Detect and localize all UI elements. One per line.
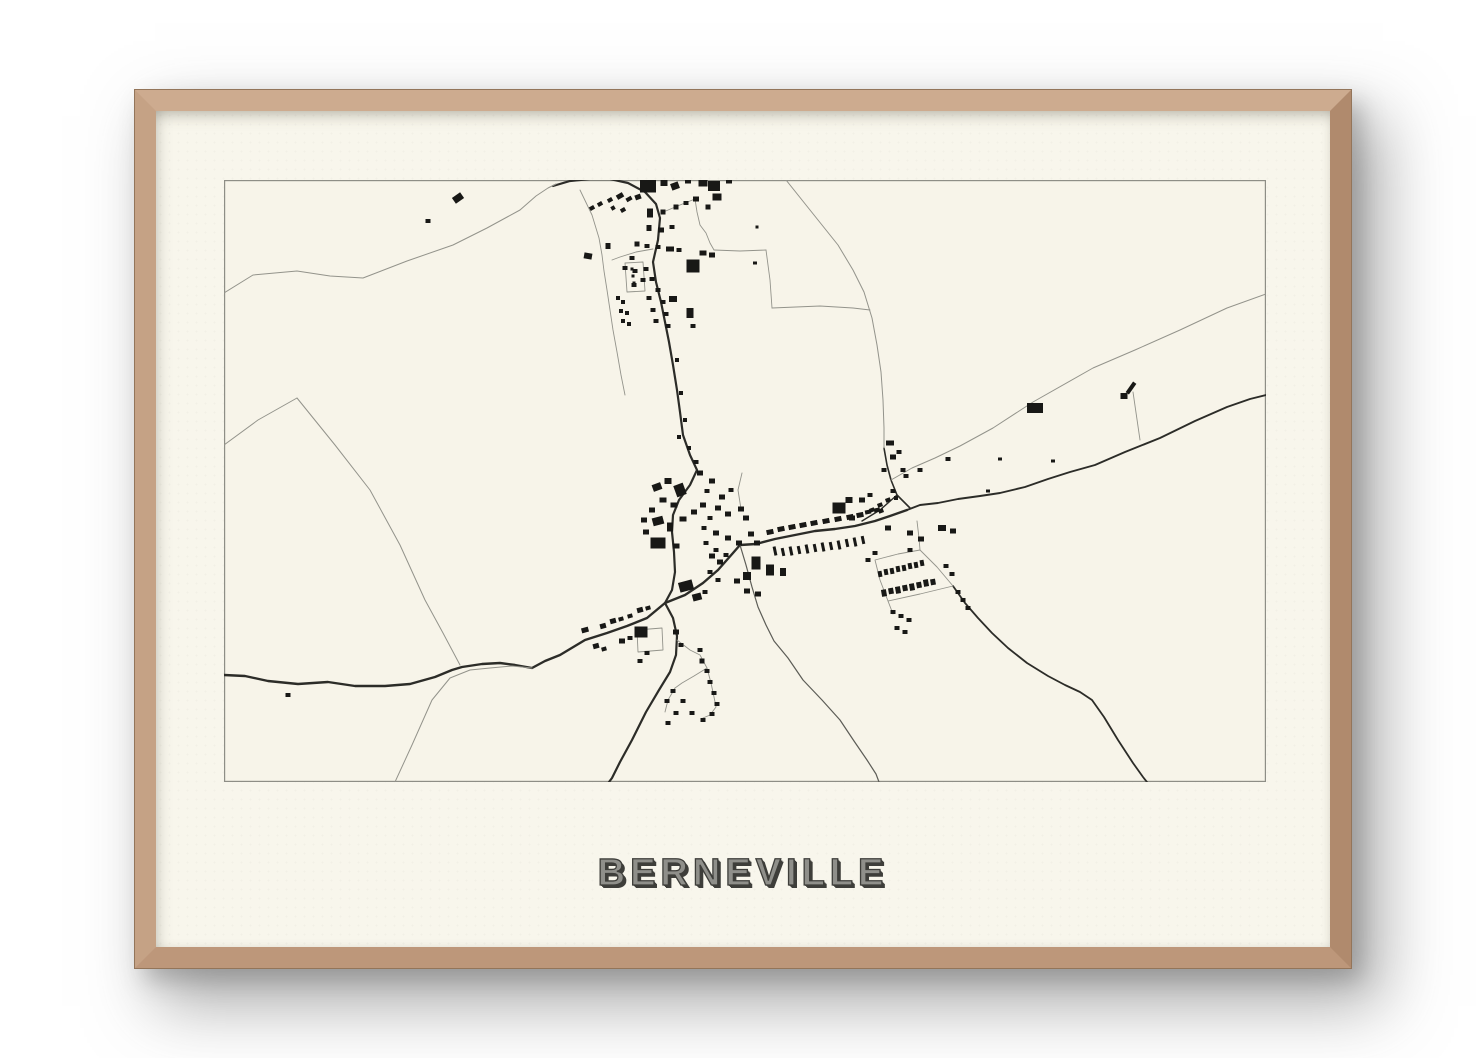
building-footprint: [890, 455, 896, 460]
building-footprint: [859, 498, 865, 503]
building-footprint: [907, 618, 912, 622]
building-footprint: [930, 579, 936, 586]
building-footprint: [690, 711, 695, 715]
building-footprint: [679, 391, 683, 395]
building-footprint: [645, 651, 650, 655]
building-footprint: [903, 630, 908, 634]
building-footprint: [616, 296, 620, 300]
building-footprint: [755, 592, 761, 597]
building-footprint: [286, 693, 291, 697]
building-footprint: [703, 590, 708, 594]
building-footprint: [744, 589, 750, 594]
building-footprint: [725, 536, 731, 541]
building-footprint: [725, 512, 731, 517]
building-footprint: [710, 712, 715, 716]
building-footprint: [886, 441, 894, 446]
building-footprint: [717, 560, 723, 565]
building-footprint: [627, 322, 631, 326]
building-footprint: [647, 225, 652, 231]
building-footprint: [630, 256, 635, 260]
building-footprint: [702, 526, 707, 530]
building-footprint: [966, 606, 971, 610]
building-footprint: [633, 282, 636, 285]
building-footprint: [661, 210, 666, 215]
building-footprint: [754, 541, 760, 546]
wall-background: BERNEVILLE: [0, 0, 1480, 1058]
building-footprint: [681, 699, 686, 703]
building-footprint: [956, 590, 961, 594]
building-footprint: [729, 488, 734, 492]
building-footprint: [640, 180, 656, 193]
building-footprint: [632, 275, 635, 278]
building-footprint: [656, 245, 661, 249]
building-footprint: [651, 308, 656, 312]
building-footprint: [709, 479, 715, 484]
building-footprint: [901, 468, 906, 472]
building-footprint: [651, 538, 666, 549]
building-footprint: [694, 460, 699, 464]
building-footprint: [916, 582, 922, 589]
building-footprint: [708, 570, 713, 574]
building-footprint: [866, 558, 871, 562]
building-footprint: [606, 243, 611, 249]
building-footprint: [698, 648, 703, 652]
building-footprint: [644, 267, 649, 271]
building-footprint: [674, 205, 679, 210]
building-footprint: [661, 180, 668, 186]
building-footprint: [714, 548, 719, 552]
building-footprint: [619, 309, 623, 313]
building-footprint: [661, 300, 666, 304]
building-footprint: [752, 557, 761, 570]
building-footprint: [673, 544, 680, 549]
building-footprint: [649, 508, 655, 513]
building-footprint: [700, 251, 707, 256]
building-footprint: [743, 572, 751, 580]
building-footprint: [705, 669, 710, 673]
building-footprint: [643, 530, 649, 535]
building-footprint: [670, 225, 675, 229]
building-footprint: [904, 474, 909, 478]
building-footprint: [780, 568, 786, 576]
building-footprint: [647, 296, 652, 300]
building-footprint: [673, 630, 679, 635]
poster-title: BERNEVILLE: [156, 852, 1330, 895]
building-footprint: [998, 458, 1002, 461]
picture-frame: BERNEVILLE: [135, 90, 1351, 968]
building-footprint: [638, 659, 643, 663]
building-footprint: [700, 503, 706, 508]
building-footprint: [699, 180, 708, 187]
building-footprint: [726, 180, 732, 184]
building-footprint: [849, 516, 855, 521]
building-footprint: [1027, 403, 1043, 413]
building-footprint: [712, 691, 717, 695]
building-footprint: [713, 194, 722, 201]
building-footprint: [709, 554, 715, 559]
building-footprint: [628, 636, 633, 640]
building-footprint: [641, 278, 646, 282]
building-footprint: [882, 468, 887, 472]
building-footprint: [680, 517, 687, 522]
building-footprint: [946, 457, 951, 461]
building-footprint: [938, 525, 946, 531]
building-footprint: [693, 197, 699, 202]
building-footprint: [705, 489, 710, 493]
building-footprint: [961, 598, 966, 602]
building-footprint: [709, 253, 715, 258]
building-footprint: [664, 312, 669, 316]
building-footprint: [656, 288, 661, 292]
building-footprint: [846, 497, 853, 503]
building-footprint: [833, 503, 846, 514]
building-footprint: [641, 518, 647, 523]
building-footprint: [621, 319, 625, 323]
building-footprint: [944, 564, 949, 568]
building-footprint: [888, 588, 894, 595]
village-map: [224, 180, 1266, 782]
building-footprint: [724, 553, 729, 557]
building-footprint: [623, 266, 628, 270]
building-footprint: [753, 262, 757, 265]
building-footprint: [897, 450, 902, 454]
building-footprint: [687, 446, 691, 450]
building-footprint: [1121, 393, 1128, 399]
building-footprint: [697, 471, 703, 476]
building-footprint: [986, 490, 990, 493]
building-footprint: [950, 529, 956, 534]
building-footprint: [671, 689, 676, 693]
building-footprint: [679, 643, 684, 647]
building-footprint: [426, 219, 431, 223]
building-footprint: [766, 565, 774, 576]
building-footprint: [700, 659, 705, 664]
building-footprint: [715, 702, 720, 706]
building-footprint: [621, 300, 625, 304]
building-footprint: [674, 711, 679, 715]
building-footprint: [647, 209, 653, 218]
building-footprint: [619, 639, 625, 644]
building-footprint: [635, 242, 640, 247]
building-footprint: [687, 308, 694, 318]
building-footprint: [715, 506, 721, 511]
building-footprint: [738, 507, 744, 512]
building-footprint: [701, 718, 706, 722]
building-footprint: [885, 526, 891, 531]
building-footprint: [907, 531, 913, 536]
building-footprint: [891, 610, 896, 614]
building-footprint: [908, 548, 913, 552]
building-footprint: [891, 489, 896, 493]
building-footprint: [873, 551, 878, 555]
building-footprint: [902, 585, 908, 592]
building-footprint: [716, 578, 721, 582]
building-footprint: [666, 247, 674, 252]
building-footprint: [918, 468, 923, 472]
building-footprint: [708, 181, 720, 191]
building-footprint: [665, 478, 672, 484]
building-footprint: [650, 277, 655, 281]
building-footprint: [868, 493, 873, 497]
building-footprint: [677, 248, 682, 252]
building-footprint: [734, 579, 740, 584]
building-footprint: [631, 268, 634, 271]
building-footprint: [667, 523, 673, 532]
building-footprint: [736, 541, 742, 546]
building-footprint: [654, 319, 659, 323]
building-footprint: [669, 296, 677, 302]
building-footprint: [660, 498, 667, 503]
poster-mat: BERNEVILLE: [156, 111, 1330, 947]
building-footprint: [895, 626, 900, 630]
building-footprint: [894, 496, 898, 500]
building-footprint: [1051, 460, 1055, 463]
building-footprint: [950, 572, 955, 576]
building-footprint: [708, 516, 713, 520]
building-footprint: [691, 324, 696, 328]
building-footprint: [666, 324, 671, 328]
building-footprint: [691, 510, 697, 515]
building-footprint: [756, 226, 759, 229]
building-footprint: [918, 537, 924, 542]
building-footprint: [684, 201, 689, 205]
building-footprint: [666, 721, 671, 725]
building-footprint: [713, 531, 719, 536]
building-footprint: [677, 435, 681, 439]
building-footprint: [683, 418, 687, 422]
building-footprint: [704, 541, 709, 545]
building-footprint: [706, 205, 711, 210]
building-footprint: [719, 495, 725, 500]
building-footprint: [708, 680, 713, 684]
building-footprint: [748, 532, 754, 537]
building-footprint: [645, 244, 650, 248]
building-footprint: [899, 614, 904, 618]
building-footprint: [671, 503, 678, 508]
building-footprint: [665, 699, 670, 703]
building-footprint: [625, 311, 629, 315]
building-footprint: [687, 260, 700, 273]
building-footprint: [635, 627, 648, 638]
building-footprint: [685, 180, 691, 184]
building-footprint: [675, 358, 679, 362]
building-footprint: [743, 516, 749, 521]
building-footprint: [658, 228, 664, 233]
